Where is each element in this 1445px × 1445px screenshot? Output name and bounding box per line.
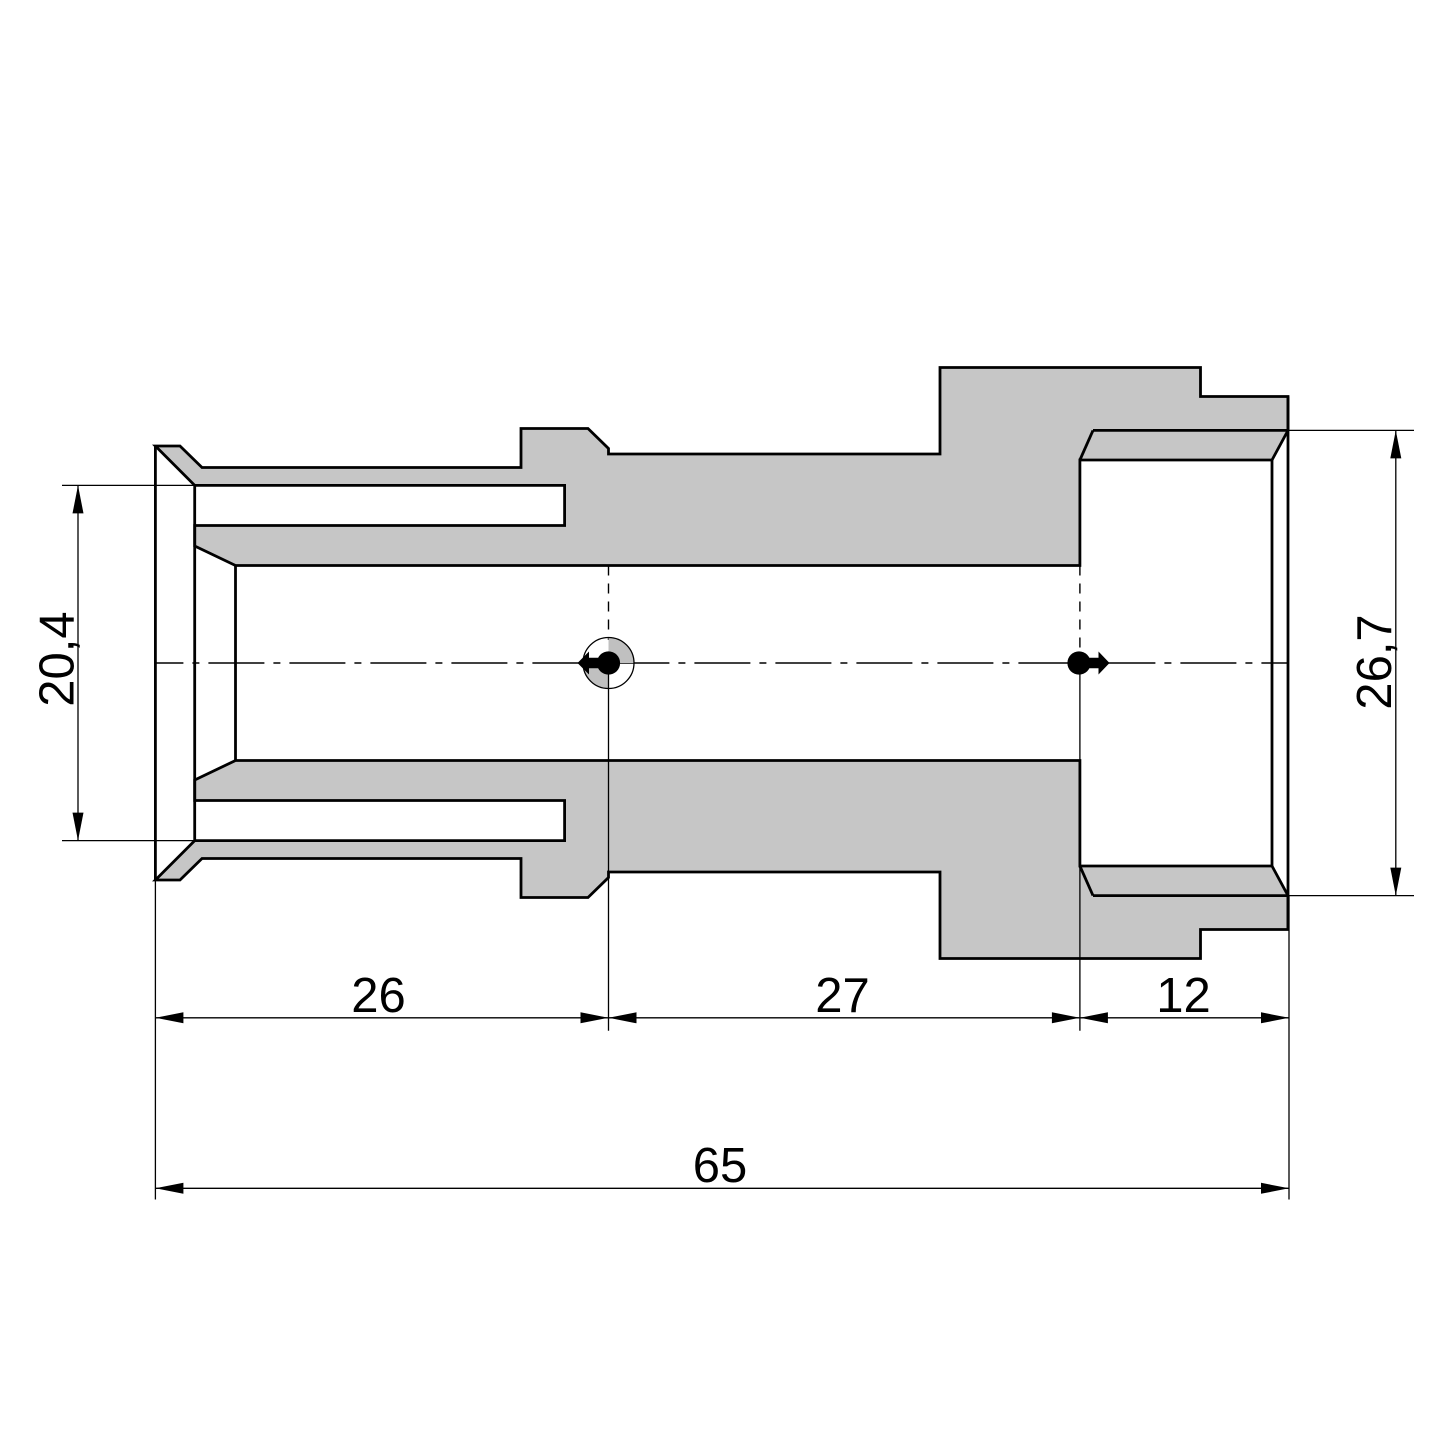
svg-text:12: 12: [1156, 969, 1211, 1023]
svg-text:26,7: 26,7: [1348, 614, 1402, 709]
svg-text:27: 27: [815, 969, 870, 1023]
svg-text:65: 65: [693, 1139, 748, 1193]
svg-text:20,4: 20,4: [30, 611, 84, 706]
svg-text:26: 26: [351, 969, 406, 1023]
